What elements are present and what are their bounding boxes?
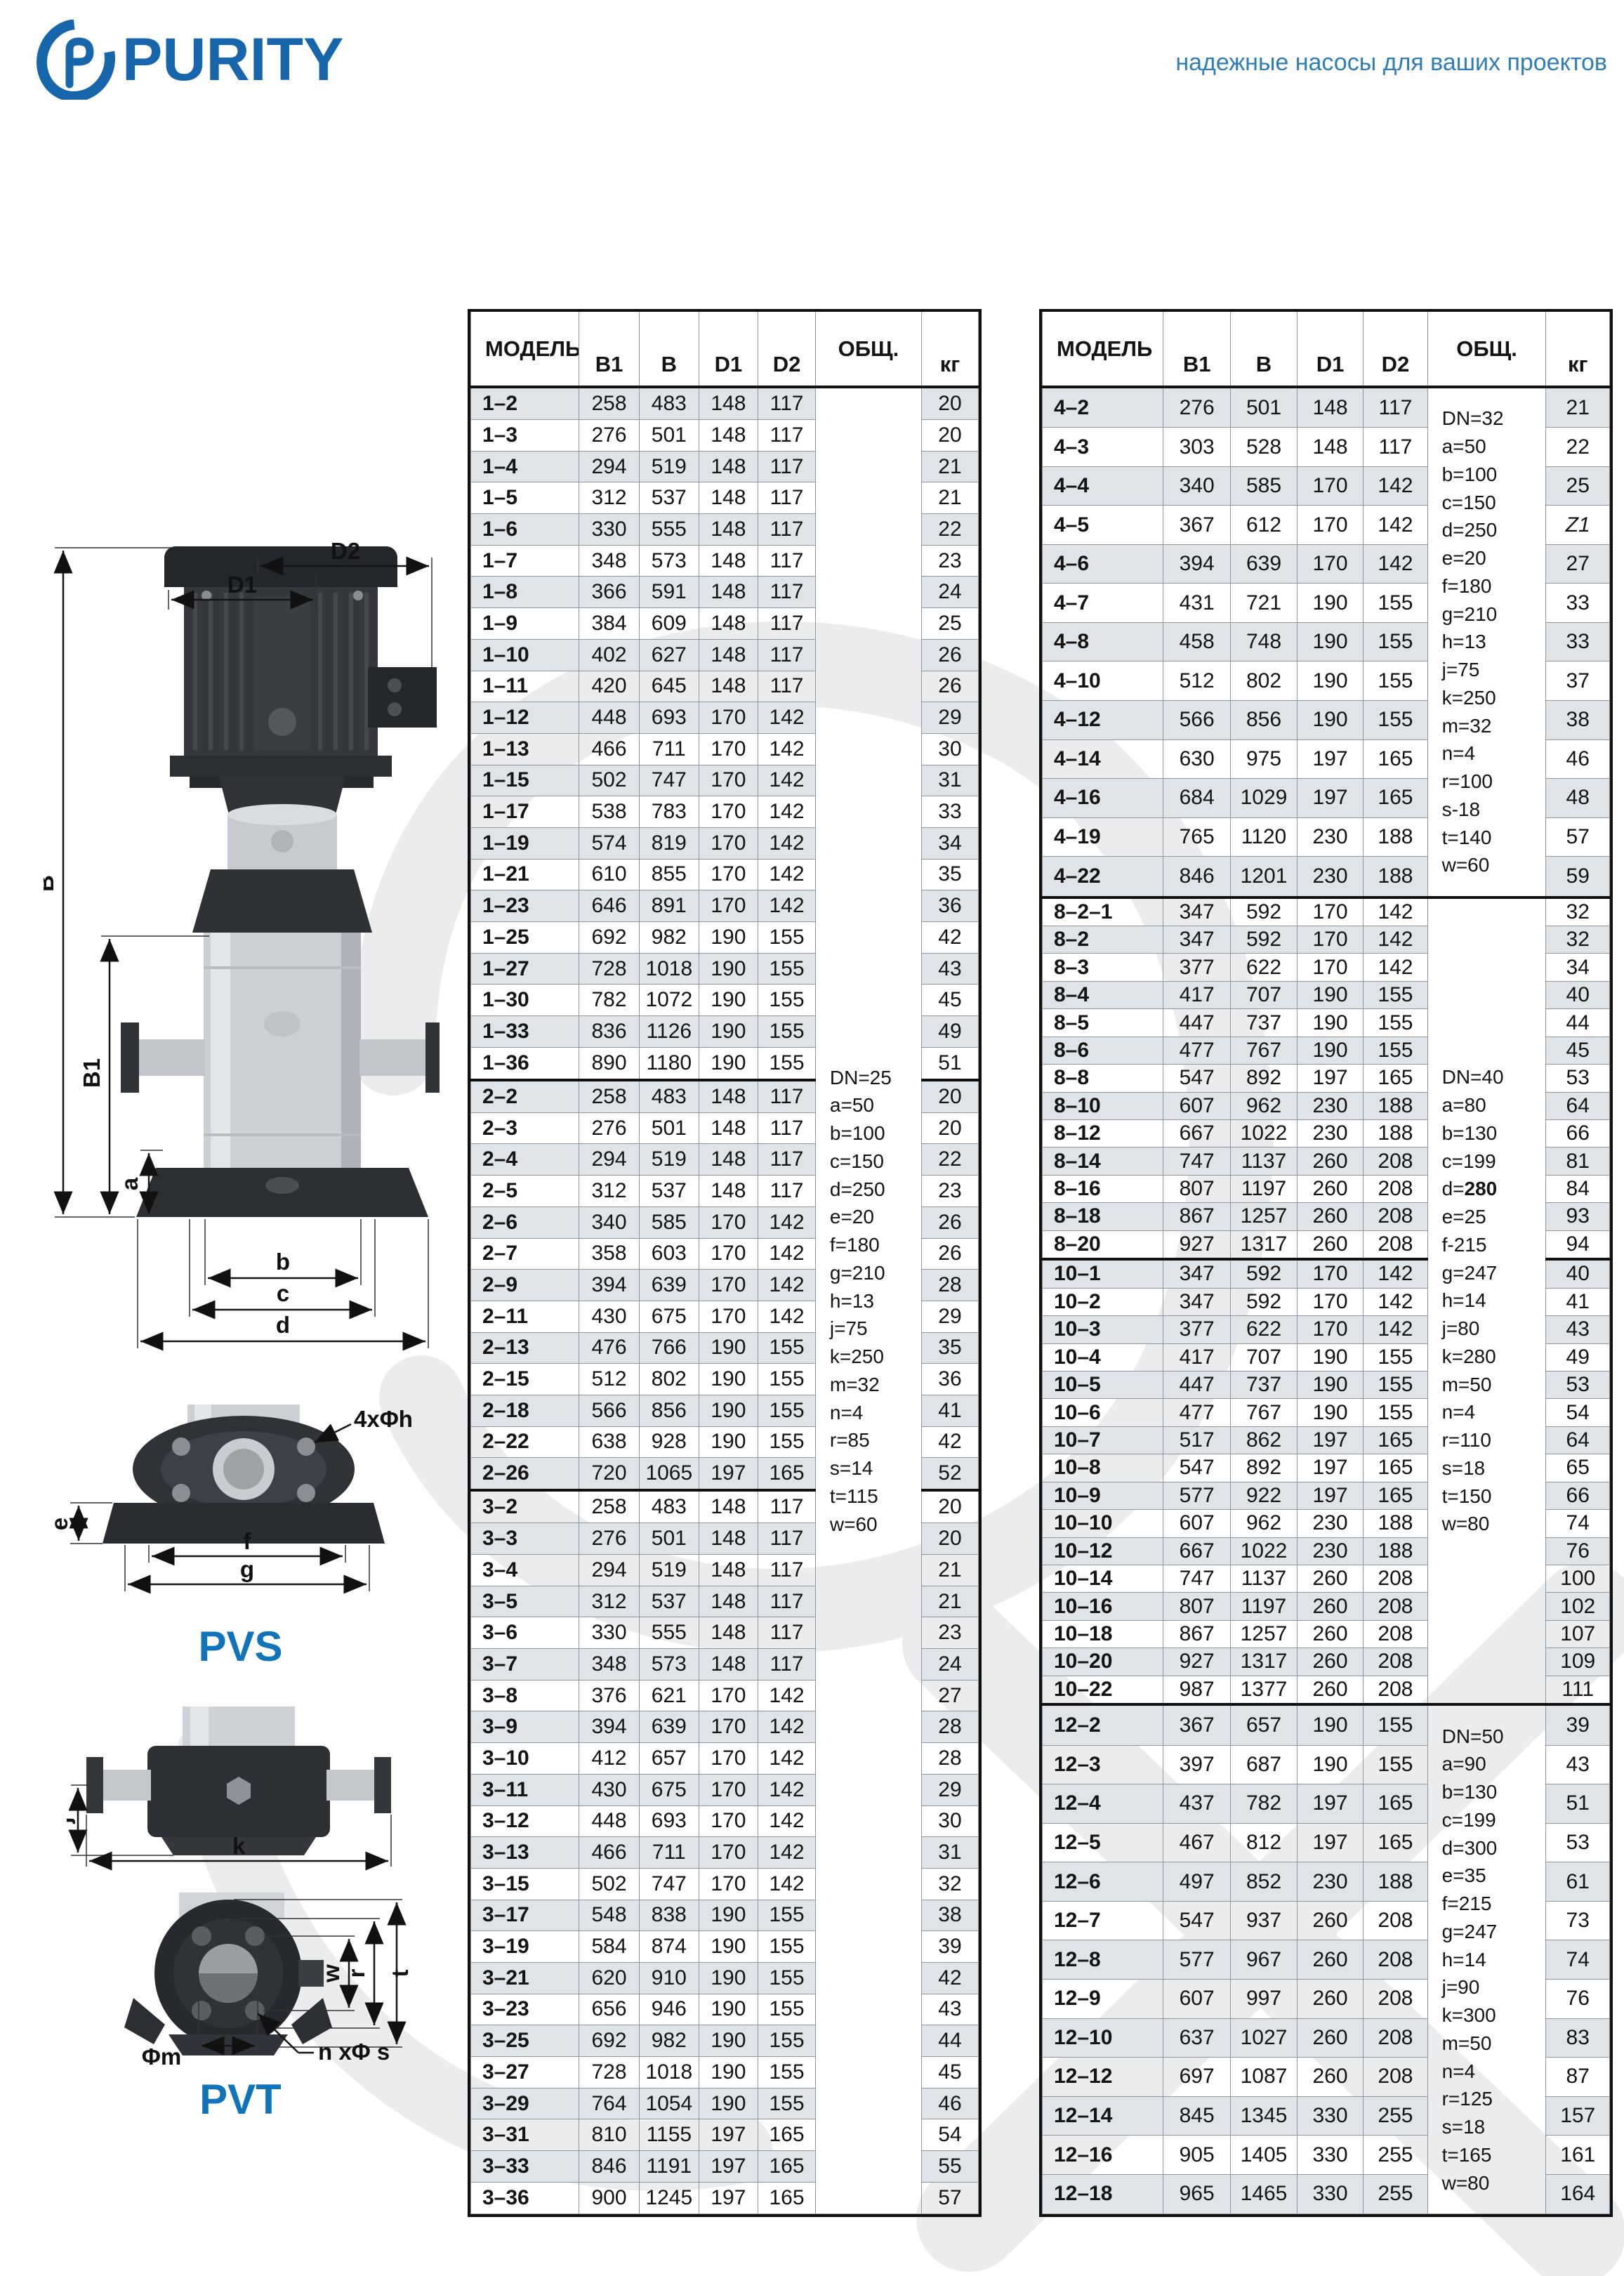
col-header-d2: D2 — [1364, 312, 1427, 387]
cell-b1: 547 — [1163, 1065, 1231, 1092]
cell-d2: 117 — [758, 1144, 816, 1176]
cell-b1: 584 — [579, 1931, 640, 1963]
cell-kg: Z1 — [1546, 506, 1610, 545]
cell-d1: 170 — [1297, 544, 1364, 584]
cell-b1: 684 — [1163, 779, 1231, 818]
cell-b1: 347 — [1163, 1259, 1231, 1288]
cell-b1: 574 — [579, 827, 640, 859]
cell-b: 1120 — [1231, 817, 1298, 857]
cell-b1: 476 — [579, 1332, 640, 1364]
cell-model: 3–13 — [471, 1837, 579, 1869]
cell-d1: 170 — [699, 1270, 758, 1301]
cell-d2: 208 — [1364, 1676, 1427, 1704]
cell-kg: 25 — [1546, 466, 1610, 506]
cell-b: 1345 — [1231, 2096, 1298, 2136]
cell-d2: 155 — [1364, 1343, 1427, 1371]
cell-kg: 40 — [1546, 981, 1610, 1008]
cell-kg: 107 — [1546, 1620, 1610, 1647]
cell-model: 2–18 — [471, 1395, 579, 1426]
cell-model: 12–6 — [1043, 1862, 1163, 1902]
cell-d2: 165 — [758, 2151, 816, 2183]
cell-d2: 208 — [1364, 1940, 1427, 1980]
cell-b1: 502 — [579, 1868, 640, 1900]
cell-d1: 230 — [1297, 1862, 1364, 1902]
cell-b: 737 — [1231, 1009, 1298, 1037]
cell-kg: 20 — [921, 1523, 978, 1555]
cell-d2: 155 — [758, 1900, 816, 1931]
cell-kg: 102 — [1546, 1593, 1610, 1620]
cell-d2: 155 — [758, 1931, 816, 1963]
cell-kg: 21 — [921, 1555, 978, 1586]
cell-b1: 620 — [579, 1962, 640, 1994]
cell-kg: 93 — [1546, 1203, 1610, 1230]
cell-b1: 312 — [579, 482, 640, 514]
cell-d2: 165 — [1364, 1823, 1427, 1862]
cell-model: 2–5 — [471, 1176, 579, 1207]
cell-kg: 26 — [921, 1206, 978, 1238]
cell-d2: 208 — [1364, 1565, 1427, 1592]
cell-d1: 260 — [1297, 1676, 1364, 1704]
cell-b: 937 — [1231, 1901, 1298, 1940]
cell-model: 12–12 — [1043, 2058, 1163, 2097]
cell-d2: 188 — [1364, 1510, 1427, 1537]
cell-model: 3–25 — [471, 2025, 579, 2057]
cell-b: 645 — [640, 671, 699, 702]
cell-d1: 170 — [1297, 926, 1364, 954]
cell-model: 4–3 — [1043, 428, 1163, 467]
col-header-b: B — [1231, 312, 1298, 387]
cell-kg: 39 — [1546, 1704, 1610, 1745]
cell-b1: 347 — [1163, 1288, 1231, 1315]
cell-b1: 607 — [1163, 1979, 1231, 2018]
cell-d1: 170 — [699, 765, 758, 796]
cell-d1: 148 — [699, 1112, 758, 1144]
cell-model: 10–12 — [1043, 1537, 1163, 1565]
table-row: 4–2276501148117DN=32a=50b=100c=150d=250e… — [1043, 387, 1610, 428]
cell-d2: 117 — [758, 639, 816, 671]
cell-kg: 42 — [921, 1426, 978, 1458]
cell-d1: 197 — [1297, 1454, 1364, 1482]
cell-b: 1317 — [1231, 1648, 1298, 1676]
cell-model: 3–31 — [471, 2119, 579, 2151]
cell-d2: 155 — [1364, 622, 1427, 662]
cell-kg: 26 — [921, 1238, 978, 1270]
cell-kg: 45 — [1546, 1037, 1610, 1064]
cell-d1: 170 — [699, 1837, 758, 1869]
cell-d2: 117 — [1364, 387, 1427, 428]
cell-kg: 36 — [921, 1364, 978, 1395]
cell-d1: 190 — [1297, 981, 1364, 1008]
cell-model: 1–2 — [471, 387, 579, 420]
cell-b1: 330 — [579, 1617, 640, 1649]
cell-kg: 43 — [921, 953, 978, 985]
cell-b: 622 — [1231, 954, 1298, 981]
cell-b: 982 — [640, 2025, 699, 2057]
cell-kg: 32 — [1546, 897, 1610, 926]
cell-model: 3–27 — [471, 2057, 579, 2088]
cell-d2: 117 — [758, 451, 816, 482]
cell-d2: 142 — [758, 1743, 816, 1775]
table-right: МОДЕЛЬB1BD1D2ОБЩ.кг4–2276501148117DN=32a… — [1042, 312, 1610, 2214]
cell-kg: 21 — [1546, 387, 1610, 428]
cell-model: 2–26 — [471, 1458, 579, 1491]
cell-b: 711 — [640, 1837, 699, 1869]
cell-b: 639 — [640, 1711, 699, 1743]
cell-d2: 142 — [1364, 506, 1427, 545]
col-header-b1: B1 — [579, 312, 640, 387]
cell-b1: 890 — [579, 1047, 640, 1080]
cell-d2: 155 — [1364, 1009, 1427, 1037]
cell-d2: 155 — [758, 1962, 816, 1994]
cell-b: 862 — [1231, 1426, 1298, 1454]
cell-b: 1197 — [1231, 1593, 1298, 1620]
cell-b: 555 — [640, 514, 699, 546]
cell-model: 10–4 — [1043, 1343, 1163, 1371]
cell-model: 2–22 — [471, 1426, 579, 1458]
cell-d2: 142 — [1364, 1259, 1427, 1288]
cell-kg: 21 — [921, 482, 978, 514]
cell-b: 657 — [1231, 1704, 1298, 1745]
cell-model: 1–8 — [471, 577, 579, 608]
cell-model: 1–19 — [471, 827, 579, 859]
cell-d1: 170 — [699, 859, 758, 890]
cell-b1: 646 — [579, 890, 640, 922]
cell-d1: 148 — [699, 1523, 758, 1555]
cell-b: 962 — [1231, 1092, 1298, 1119]
cell-b1: 477 — [1163, 1037, 1231, 1064]
cell-b: 585 — [640, 1206, 699, 1238]
cell-b1: 807 — [1163, 1593, 1231, 1620]
cell-model: 3–33 — [471, 2151, 579, 2183]
cell-b1: 258 — [579, 1490, 640, 1523]
cell-b1: 377 — [1163, 954, 1231, 981]
cell-kg: 94 — [1546, 1230, 1610, 1259]
cell-b: 962 — [1231, 1510, 1298, 1537]
catalog-page: PURITY надежные насосы для ваших проекто… — [0, 0, 1624, 2276]
cell-b: 592 — [1231, 1288, 1298, 1315]
cell-b: 483 — [640, 387, 699, 420]
cell-model: 4–19 — [1043, 817, 1163, 857]
cell-b: 767 — [1231, 1399, 1298, 1426]
cell-kg: 28 — [921, 1711, 978, 1743]
cell-b1: 927 — [1163, 1648, 1231, 1676]
cell-b1: 358 — [579, 1238, 640, 1270]
cell-kg: 59 — [1546, 857, 1610, 897]
cell-d2: 255 — [1364, 2096, 1427, 2136]
col-header-common: ОБЩ. — [815, 312, 921, 387]
cell-d1: 190 — [1297, 701, 1364, 740]
cell-d2: 142 — [1364, 1316, 1427, 1343]
cell-b: 910 — [640, 1962, 699, 1994]
cell-kg: 23 — [921, 1176, 978, 1207]
cell-d1: 230 — [1297, 1092, 1364, 1119]
cell-d1: 170 — [1297, 506, 1364, 545]
cell-d1: 190 — [699, 2088, 758, 2119]
dim-t-label: t — [387, 1970, 411, 1978]
cell-model: 10–2 — [1043, 1288, 1163, 1315]
cell-d1: 170 — [1297, 897, 1364, 926]
cell-b1: 810 — [579, 2119, 640, 2151]
cell-b: 621 — [640, 1680, 699, 1711]
cell-model: 8–8 — [1043, 1065, 1163, 1092]
dim-c-label: c — [277, 1280, 289, 1306]
cell-b1: 467 — [1163, 1823, 1231, 1862]
pump-bracket — [192, 869, 372, 933]
cell-d1: 197 — [1297, 1426, 1364, 1454]
cell-b: 1197 — [1231, 1175, 1298, 1202]
cell-model: 4–8 — [1043, 622, 1163, 662]
dim-d-label: d — [276, 1312, 290, 1338]
cell-d1: 170 — [699, 733, 758, 765]
cell-d1: 170 — [699, 1238, 758, 1270]
cell-d1: 260 — [1297, 1620, 1364, 1647]
cell-d1: 190 — [699, 985, 758, 1016]
cell-d2: 155 — [758, 985, 816, 1016]
cell-d1: 170 — [699, 796, 758, 828]
cell-b1: 900 — [579, 2182, 640, 2213]
cell-b1: 965 — [1163, 2174, 1231, 2213]
cell-d1: 170 — [699, 1743, 758, 1775]
cell-kg: 39 — [921, 1931, 978, 1963]
cell-d2: 155 — [758, 922, 816, 954]
cell-b1: 294 — [579, 451, 640, 482]
cell-kg: 30 — [921, 1805, 978, 1837]
cell-d1: 260 — [1297, 1203, 1364, 1230]
cell-b: 555 — [640, 1617, 699, 1649]
cell-d2: 155 — [758, 1047, 816, 1080]
cell-b1: 566 — [579, 1395, 640, 1426]
cell-b: 1137 — [1231, 1147, 1298, 1175]
cell-kg: 49 — [921, 1016, 978, 1048]
pvs-pump-drawing: B B1 a D1 D2 b c d — [44, 532, 440, 1389]
cell-d2: 142 — [758, 859, 816, 890]
cell-b1: 303 — [1163, 428, 1231, 467]
cell-model: 2–9 — [471, 1270, 579, 1301]
cell-b: 639 — [640, 1270, 699, 1301]
cell-model: 10–6 — [1043, 1399, 1163, 1426]
cell-kg: 27 — [1546, 544, 1610, 584]
cell-b1: 517 — [1163, 1426, 1231, 1454]
col-header-model: МОДЕЛЬ — [1043, 312, 1163, 387]
table-left: МОДЕЛЬB1BD1D2ОБЩ.кг1–2258483148117DN=25a… — [470, 312, 979, 2214]
cell-model: 12–2 — [1043, 1704, 1163, 1745]
dim-D1-label: D1 — [227, 572, 257, 598]
cell-b1: 610 — [579, 859, 640, 890]
cell-d1: 190 — [1297, 1704, 1364, 1745]
cell-model: 4–10 — [1043, 662, 1163, 701]
cell-model: 4–16 — [1043, 779, 1163, 818]
dim-r-label: r — [343, 1968, 369, 1978]
table-row: 8–2–1347592170142DN=40a=80b=130c=199d=28… — [1043, 897, 1610, 926]
cell-b1: 447 — [1163, 1371, 1231, 1399]
cell-model: 3–6 — [471, 1617, 579, 1649]
cell-d1: 190 — [699, 1364, 758, 1395]
cell-b: 892 — [1231, 1454, 1298, 1482]
cell-model: 3–5 — [471, 1586, 579, 1617]
cell-model: 1–11 — [471, 671, 579, 702]
cell-d1: 170 — [699, 1805, 758, 1837]
cell-b: 747 — [640, 1868, 699, 1900]
cell-d2: 142 — [758, 1238, 816, 1270]
cell-d1: 190 — [699, 1016, 758, 1048]
cell-d2: 188 — [1364, 817, 1427, 857]
cell-b: 838 — [640, 1900, 699, 1931]
cell-b: 1022 — [1231, 1537, 1298, 1565]
cell-b: 657 — [640, 1743, 699, 1775]
cell-kg: 57 — [1546, 817, 1610, 857]
cell-d1: 330 — [1297, 2136, 1364, 2175]
cell-b: 639 — [1231, 544, 1298, 584]
cell-b1: 367 — [1163, 1704, 1231, 1745]
cell-d1: 170 — [699, 1868, 758, 1900]
cell-kg: 33 — [1546, 622, 1610, 662]
cell-b: 612 — [1231, 506, 1298, 545]
cell-d1: 190 — [699, 1426, 758, 1458]
cell-d2: 188 — [1364, 1537, 1427, 1565]
pump-side-view-drawing: j k — [67, 1706, 411, 1872]
cell-model: 4–12 — [1043, 701, 1163, 740]
cell-d1: 148 — [699, 1144, 758, 1176]
cell-b: 747 — [640, 765, 699, 796]
cell-kg: 73 — [1546, 1901, 1610, 1940]
cell-d1: 230 — [1297, 857, 1364, 897]
cell-b: 1054 — [640, 2088, 699, 2119]
cell-model: 3–9 — [471, 1711, 579, 1743]
cell-b1: 728 — [579, 2057, 640, 2088]
cell-b: 1065 — [640, 1458, 699, 1491]
cell-model: 1–7 — [471, 545, 579, 577]
col-header-b: B — [640, 312, 699, 387]
cell-d2: 142 — [1364, 1288, 1427, 1315]
cell-d1: 148 — [699, 608, 758, 640]
cell-d1: 260 — [1297, 2058, 1364, 2097]
cell-d2: 165 — [758, 1458, 816, 1491]
cell-b: 1201 — [1231, 857, 1298, 897]
cell-kg: 46 — [921, 2088, 978, 2119]
cell-b1: 367 — [1163, 506, 1231, 545]
cell-b1: 394 — [579, 1270, 640, 1301]
cell-b1: 512 — [1163, 662, 1231, 701]
cell-b: 819 — [640, 827, 699, 859]
cell-b1: 845 — [1163, 2096, 1231, 2136]
dim-k-label: k — [232, 1833, 246, 1859]
cell-b: 1245 — [640, 2182, 699, 2213]
cell-model: 1–4 — [471, 451, 579, 482]
cell-model: 3–36 — [471, 2182, 579, 2213]
cell-d2: 142 — [758, 890, 816, 922]
cell-d1: 170 — [1297, 1259, 1364, 1288]
cell-d1: 330 — [1297, 2096, 1364, 2136]
cell-d2: 155 — [758, 2088, 816, 2119]
cell-b: 537 — [640, 1586, 699, 1617]
cell-model: 4–14 — [1043, 739, 1163, 779]
cell-d2: 142 — [1364, 926, 1427, 954]
cell-b1: 846 — [579, 2151, 640, 2183]
cell-d2: 117 — [758, 1112, 816, 1144]
cell-d2: 155 — [758, 2025, 816, 2057]
cell-d2: 117 — [758, 545, 816, 577]
cell-d2: 117 — [758, 1586, 816, 1617]
col-header-model: МОДЕЛЬ — [471, 312, 579, 387]
cell-kg: 22 — [921, 514, 978, 546]
cell-b: 1257 — [1231, 1620, 1298, 1647]
cell-kg: 53 — [1546, 1065, 1610, 1092]
cell-model: 2–6 — [471, 1206, 579, 1238]
cell-d1: 230 — [1297, 817, 1364, 857]
table-row: 12–2367657190155DN=50a=90b=130c=199d=300… — [1043, 1704, 1610, 1745]
cell-d2: 188 — [1364, 1862, 1427, 1902]
pvs-flange-drawing: e f g 4xΦh — [44, 1405, 440, 1598]
cell-d1: 190 — [1297, 622, 1364, 662]
cell-kg: 27 — [921, 1680, 978, 1711]
cell-d2: 117 — [758, 1490, 816, 1523]
cell-d1: 170 — [1297, 954, 1364, 981]
cell-d2: 117 — [758, 1523, 816, 1555]
common-dimensions-note: DN=50a=90b=130c=199d=300e=35f=215g=247h=… — [1427, 1704, 1546, 2213]
cell-d1: 170 — [699, 890, 758, 922]
cell-d1: 260 — [1297, 1648, 1364, 1676]
cell-d1: 260 — [1297, 1979, 1364, 2018]
cell-b1: 258 — [579, 1080, 640, 1113]
cell-b: 1257 — [1231, 1203, 1298, 1230]
dim-n-phi-s-label: n xΦ s — [318, 2039, 390, 2065]
cell-kg: 24 — [921, 577, 978, 608]
cell-d1: 190 — [699, 2025, 758, 2057]
cell-d2: 117 — [758, 1080, 816, 1113]
cell-b1: 905 — [1163, 2136, 1231, 2175]
cell-model: 3–7 — [471, 1649, 579, 1680]
cell-model: 10–14 — [1043, 1565, 1163, 1592]
cell-d1: 170 — [699, 1301, 758, 1332]
cell-d1: 190 — [699, 1395, 758, 1426]
cell-d2: 142 — [758, 1711, 816, 1743]
cell-kg: 66 — [1546, 1120, 1610, 1147]
dim-w-label: w — [318, 1964, 344, 1983]
cell-model: 4–5 — [1043, 506, 1163, 545]
cell-b: 627 — [640, 639, 699, 671]
cell-b: 687 — [1231, 1745, 1298, 1784]
cell-d2: 155 — [758, 1332, 816, 1364]
cell-d1: 260 — [1297, 1593, 1364, 1620]
cell-d2: 142 — [758, 796, 816, 828]
cell-kg: 81 — [1546, 1147, 1610, 1175]
cell-b: 501 — [640, 1523, 699, 1555]
cell-b1: 417 — [1163, 981, 1231, 1008]
cell-d1: 190 — [699, 2057, 758, 2088]
cell-d1: 330 — [1297, 2174, 1364, 2213]
cell-b1: 397 — [1163, 1745, 1231, 1784]
cell-b1: 430 — [579, 1774, 640, 1805]
cell-model: 4–4 — [1043, 466, 1163, 506]
cell-b: 982 — [640, 922, 699, 954]
cell-d2: 117 — [758, 671, 816, 702]
cell-b1: 348 — [579, 545, 640, 577]
cell-model: 12–16 — [1043, 2136, 1163, 2175]
cell-b1: 347 — [1163, 897, 1231, 926]
cell-d2: 155 — [758, 1395, 816, 1426]
cell-b1: 867 — [1163, 1620, 1231, 1647]
cell-model: 3–17 — [471, 1900, 579, 1931]
header-row: МОДЕЛЬB1BD1D2ОБЩ.кг — [471, 312, 979, 387]
cell-model: 1–25 — [471, 922, 579, 954]
cell-d1: 190 — [1297, 1009, 1364, 1037]
cell-d1: 170 — [1297, 1316, 1364, 1343]
cell-model: 12–3 — [1043, 1745, 1163, 1784]
cell-d2: 165 — [758, 2182, 816, 2213]
cell-b1: 340 — [1163, 466, 1231, 506]
cell-kg: 45 — [921, 985, 978, 1016]
cell-d2: 142 — [758, 1206, 816, 1238]
